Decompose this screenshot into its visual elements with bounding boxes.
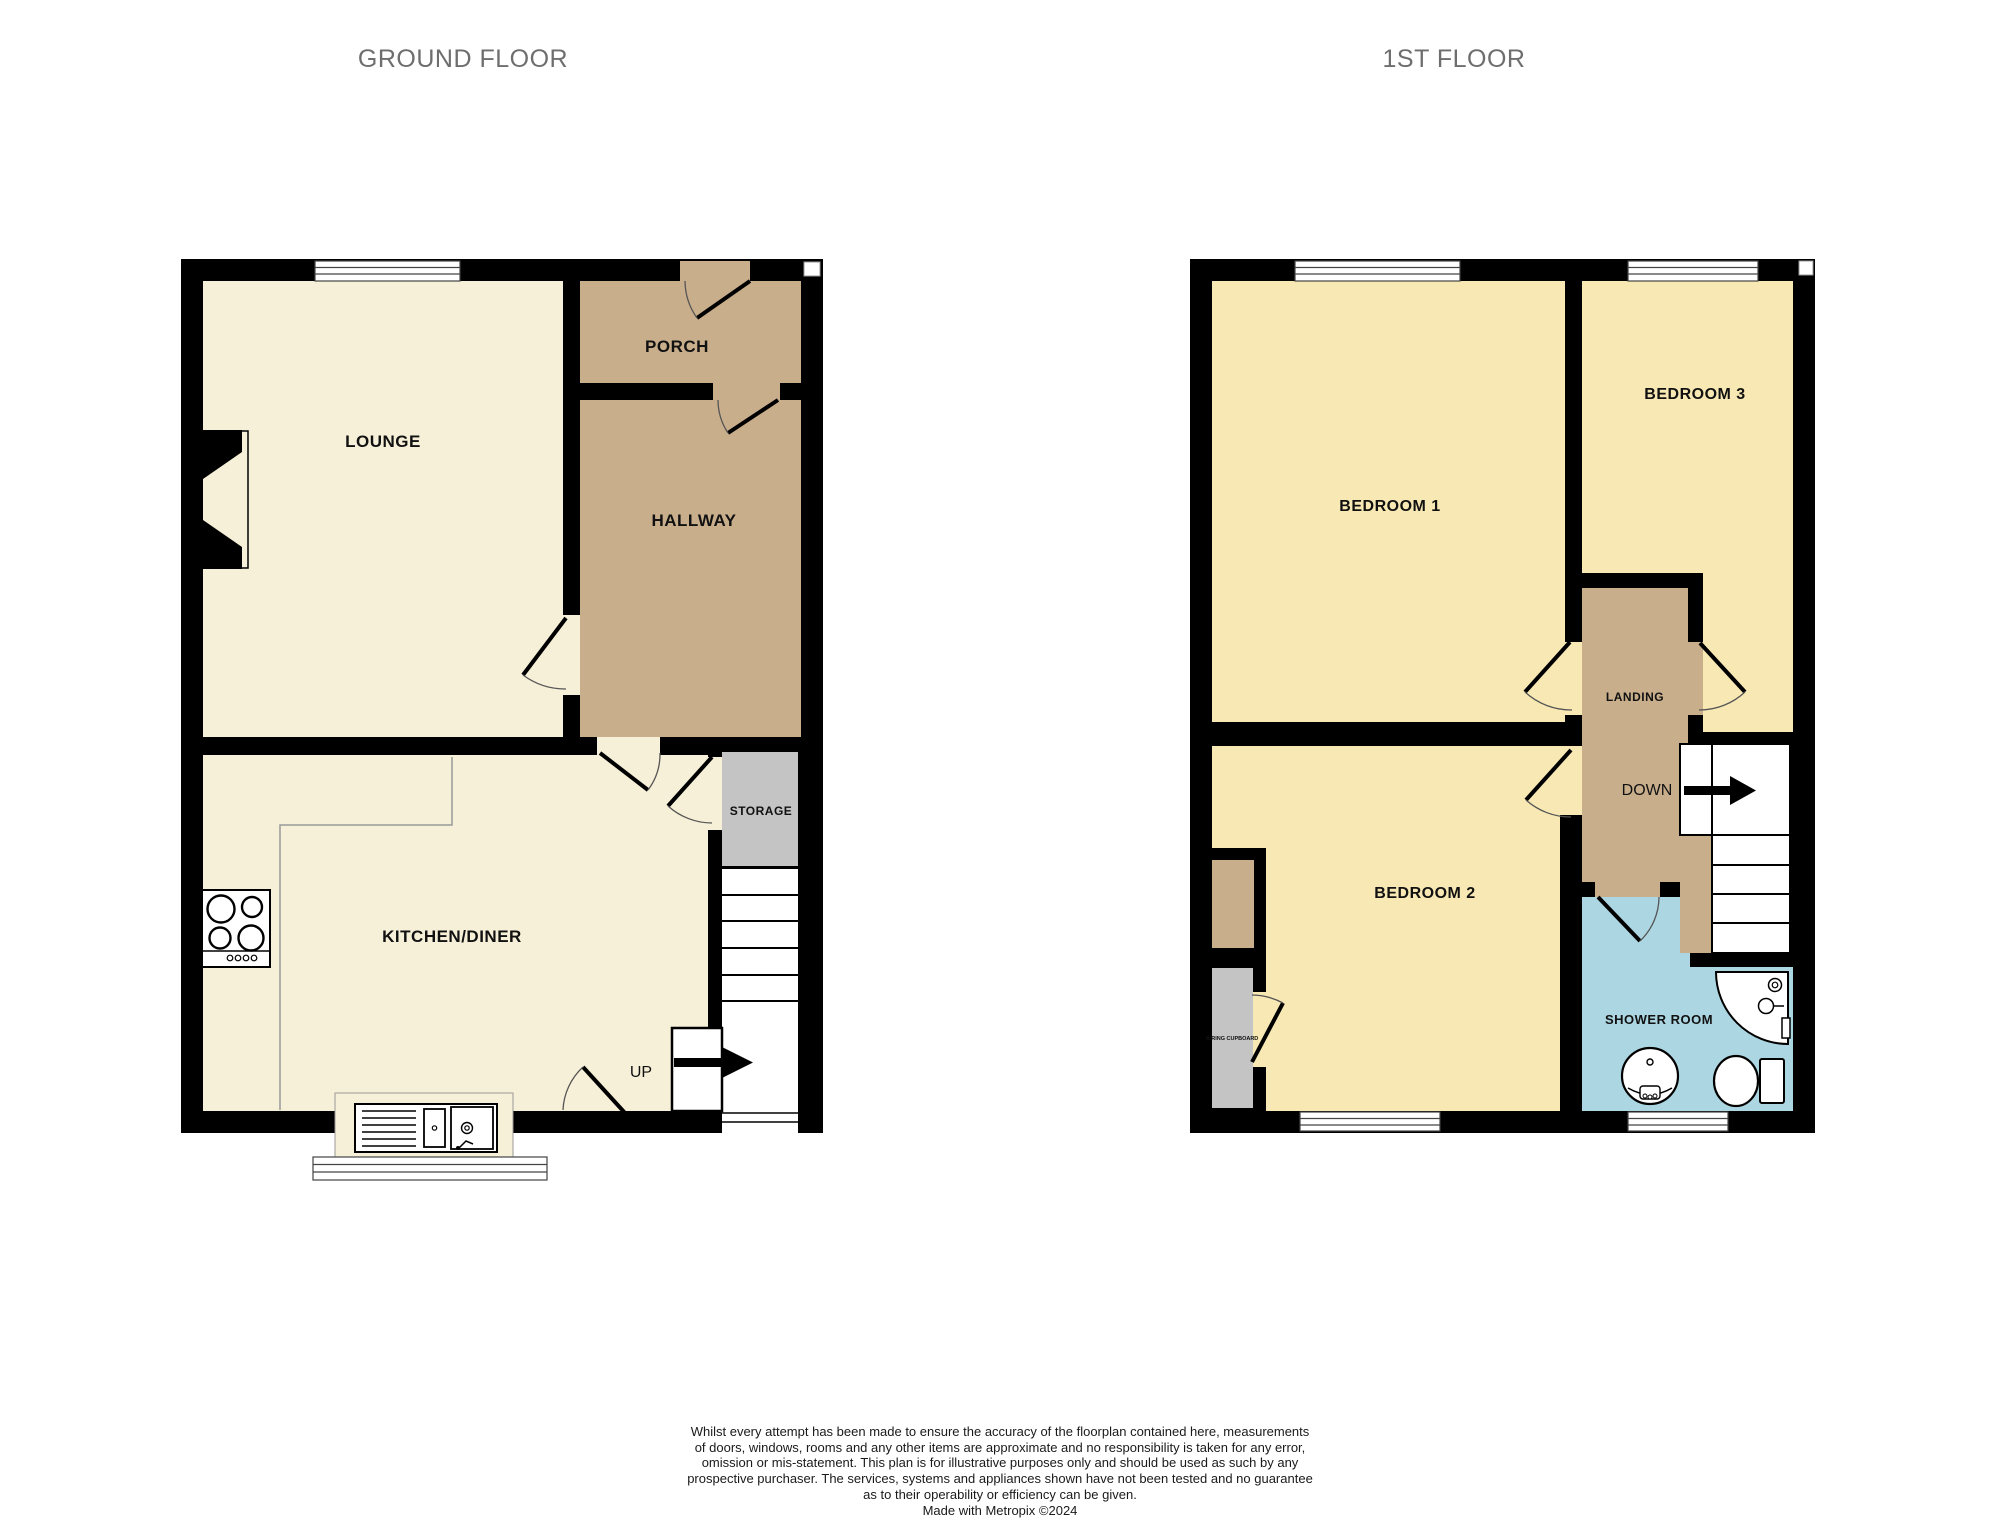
corner-post	[1799, 261, 1813, 275]
bay-window	[313, 1157, 547, 1180]
window	[315, 261, 460, 281]
ground-floor-plan: LOUNGE PORCH HALLWAY KITCHEN/DINER STORA…	[181, 259, 823, 1180]
lounge-room	[203, 281, 563, 737]
corner-post	[804, 262, 820, 276]
bedroom3-opening	[1688, 642, 1703, 715]
kitchen-diner-label: KITCHEN/DINER	[382, 927, 522, 946]
stairs-up-label: UP	[630, 1064, 652, 1081]
stairs-side	[1680, 835, 1712, 953]
window	[1628, 1112, 1728, 1131]
hallway-label: HALLWAY	[651, 511, 736, 530]
disclaimer-line: of doors, windows, rooms and any other i…	[0, 1440, 2000, 1456]
sink-bay	[313, 1093, 547, 1180]
landing-label: LANDING	[1606, 690, 1664, 704]
disclaimer: Whilst every attempt has been made to en…	[0, 1424, 2000, 1518]
metropix-credit: Made with Metropix ©2024	[0, 1503, 2000, 1519]
porch-entry-opening	[680, 261, 750, 281]
porch-hall-opening	[713, 383, 780, 400]
basin-icon	[1622, 1048, 1678, 1104]
stairs-landing-box	[672, 1028, 722, 1111]
window	[1628, 261, 1758, 281]
stair-wall	[1700, 953, 1793, 967]
floorplan-page: GROUND FLOOR 1ST FLOOR	[0, 0, 2000, 1519]
sink-icon	[355, 1104, 497, 1152]
toilet-icon	[1714, 1056, 1784, 1106]
first-floor-plan: BEDROOM 1 BEDROOM 3 BEDROOM 2 LANDING DO…	[1190, 259, 1815, 1133]
hall-kitchen-opening	[597, 737, 660, 755]
disclaimer-line: as to their operability or efficiency ca…	[0, 1487, 2000, 1503]
alcove	[1212, 860, 1254, 948]
window	[1295, 261, 1460, 281]
disclaimer-line: prospective purchaser. The services, sys…	[0, 1471, 2000, 1487]
bedroom1-opening	[1565, 642, 1582, 715]
shower-room-label: SHOWER ROOM	[1605, 1012, 1713, 1027]
hall-lounge-opening	[563, 615, 580, 695]
storage-label: STORAGE	[730, 804, 793, 818]
landing-room	[1582, 588, 1688, 882]
stairs-down-treads	[1712, 835, 1790, 953]
bedroom2-label: BEDROOM 2	[1374, 885, 1475, 902]
disclaimer-line: Whilst every attempt has been made to en…	[0, 1424, 2000, 1440]
porch-label: PORCH	[645, 337, 709, 356]
porch-room	[580, 281, 801, 383]
bedroom1-label: BEDROOM 1	[1339, 498, 1440, 515]
shower-opening	[1595, 882, 1660, 897]
airing-cupboard-label: AIRING CUPBOARD	[1206, 1036, 1259, 1042]
storage-opening	[708, 757, 722, 830]
disclaimer-line: omission or mis-statement. This plan is …	[0, 1455, 2000, 1471]
lounge-label: LOUNGE	[345, 432, 421, 451]
window	[1300, 1112, 1440, 1131]
stairs-down-label: DOWN	[1622, 782, 1673, 799]
bedroom3-label: BEDROOM 3	[1644, 386, 1745, 403]
stairs-up-bottom	[722, 1028, 798, 1133]
hallway-room	[580, 400, 801, 737]
floorplan-drawing: LOUNGE PORCH HALLWAY KITCHEN/DINER STORA…	[0, 0, 2000, 1519]
hob-icon	[202, 890, 270, 967]
